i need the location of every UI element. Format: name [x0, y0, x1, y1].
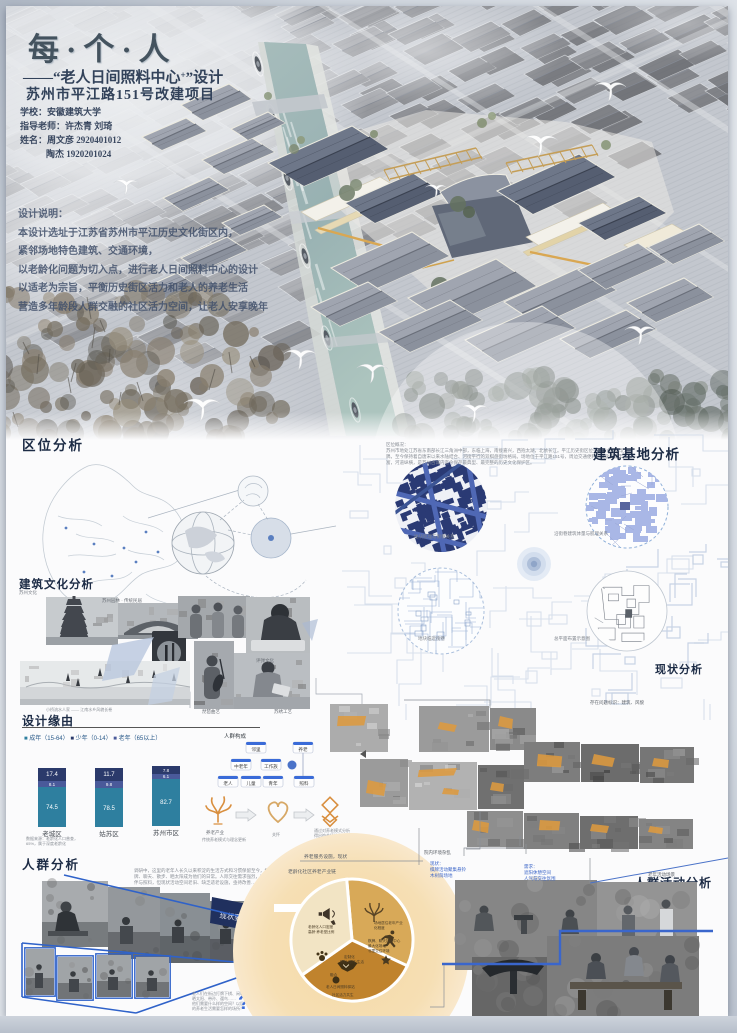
- svg-text:中老年: 中老年: [234, 763, 248, 770]
- svg-text:融合: 融合: [330, 972, 338, 977]
- svg-text:化程度: 化程度: [374, 925, 385, 930]
- svg-text:老龄化人口密度: 老龄化人口密度: [308, 924, 334, 929]
- svg-text:照料·陪伴·生活: 照料·陪伴·生活: [340, 959, 364, 964]
- svg-text:苏州园林 · 传统民居: 苏州园林 · 传统民居: [102, 597, 142, 604]
- svg-text:高龄·养老型比例: 高龄·养老型比例: [308, 929, 335, 934]
- svg-text:养老: 养老: [298, 746, 308, 753]
- svg-text:儿童: 儿童: [246, 780, 256, 787]
- svg-text:9.8: 9.8: [106, 782, 113, 787]
- svg-text:邻里交往环境: 邻里交往环境: [368, 948, 390, 953]
- svg-text:场地居住老年产业: 场地居住老年产业: [374, 920, 403, 925]
- svg-text:82.7: 82.7: [160, 800, 172, 806]
- svg-text:青年: 青年: [268, 780, 278, 787]
- svg-text:养老产业: 养老产业: [206, 829, 224, 836]
- svg-text:最大化场地: 最大化场地: [368, 943, 386, 948]
- svg-text:评弹文化: 评弹文化: [256, 657, 274, 664]
- svg-text:老人: 老人: [223, 780, 233, 786]
- svg-text:邻里: 邻里: [251, 746, 261, 753]
- svg-text:苏州市区: 苏州市区: [153, 828, 180, 837]
- svg-text:78.5: 78.5: [103, 806, 115, 812]
- svg-text:11.7: 11.7: [103, 772, 115, 778]
- svg-text:老年活动场景: 老年活动场景: [648, 871, 675, 878]
- svg-text:6.1: 6.1: [163, 774, 170, 779]
- svg-text:工作族: 工作族: [264, 763, 278, 770]
- svg-text:琵琶曲艺: 琵琶曲艺: [202, 708, 220, 715]
- svg-text:社区活力共生: 社区活力共生: [332, 992, 354, 997]
- svg-text:姑苏区: 姑苏区: [99, 829, 119, 838]
- svg-text:苏绣工艺: 苏绣工艺: [274, 708, 292, 715]
- svg-text:人群构成: 人群构成: [224, 732, 247, 740]
- svg-text:65%，属于深度老龄化: 65%，属于深度老龄化: [26, 840, 66, 846]
- svg-text:8.1: 8.1: [49, 782, 56, 787]
- svg-text:棋牌、聊天打牌中心: 棋牌、聊天打牌中心: [368, 938, 401, 943]
- svg-text:定制化: 定制化: [344, 954, 355, 959]
- svg-text:老人日间照料驿站: 老人日间照料驿站: [326, 984, 355, 989]
- svg-text:存在问题标识：建筑、风貌: 存在问题标识：建筑、风貌: [590, 699, 644, 706]
- svg-text:17.4: 17.4: [46, 772, 58, 778]
- svg-text:7.8: 7.8: [163, 768, 170, 773]
- svg-text:74.5: 74.5: [46, 805, 58, 811]
- svg-text:照料: 照料: [299, 780, 309, 787]
